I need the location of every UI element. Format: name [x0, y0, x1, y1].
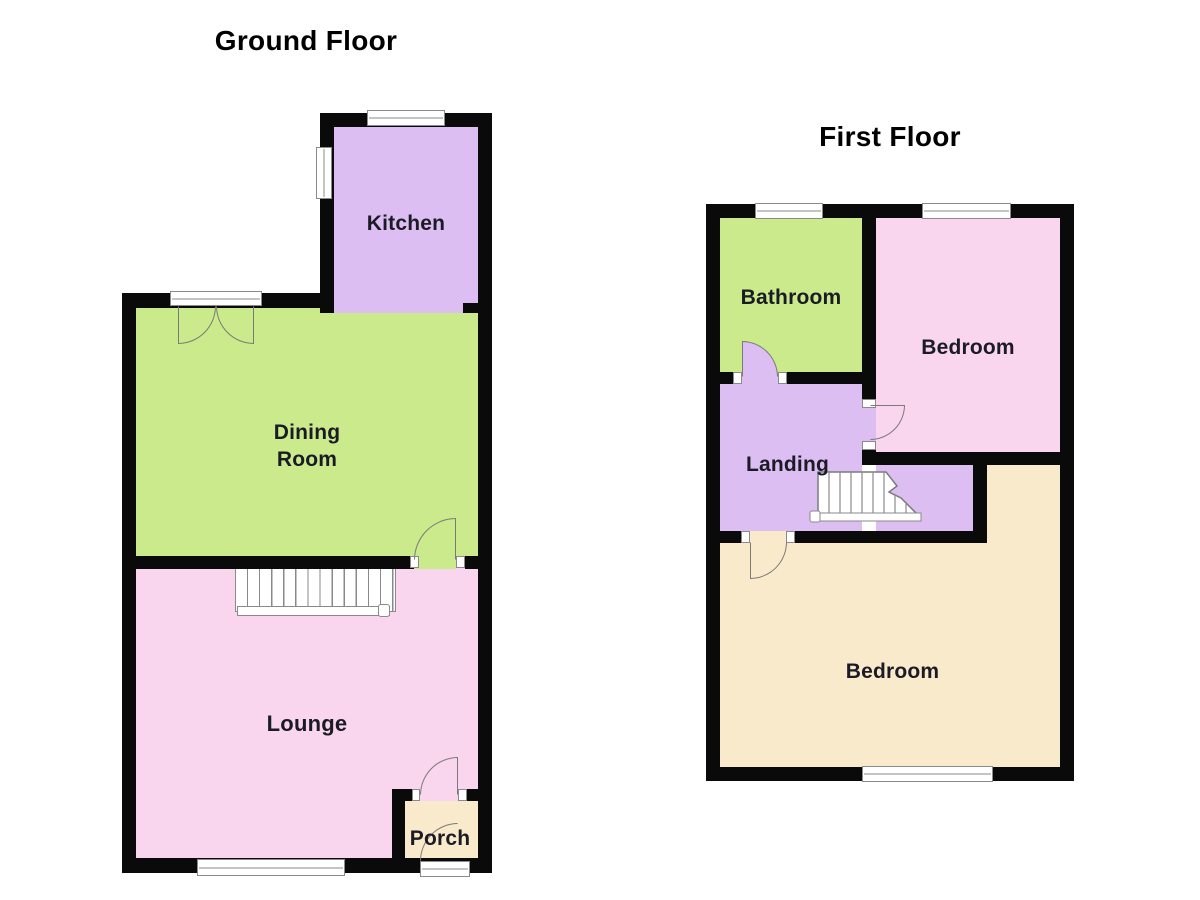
- bedroom-front-window: [922, 203, 1011, 219]
- ground-floor-title: Ground Floor: [156, 23, 456, 59]
- kitchen-label: Kitchen: [334, 210, 478, 238]
- wall-segment: [478, 113, 492, 873]
- wall-segment: [465, 556, 478, 569]
- door-jamb: [741, 531, 750, 543]
- wall-segment: [122, 293, 136, 873]
- kitchen-left-window: [316, 147, 332, 199]
- bedroom-front-label: Bedroom: [876, 334, 1060, 362]
- ground-staircase-newel: [378, 604, 390, 617]
- door-jamb: [786, 531, 795, 543]
- lounge-label: Lounge: [136, 710, 478, 738]
- room-bedroom-back: [720, 543, 1060, 767]
- lounge-bottom-window: [197, 859, 345, 876]
- wall-segment: [862, 452, 1074, 465]
- door-jamb: [862, 441, 876, 450]
- bedroom-back-window: [862, 766, 993, 782]
- wall-segment: [787, 372, 876, 384]
- bathroom-label: Bathroom: [720, 284, 862, 312]
- floorplan-page: Ground Floor: [0, 0, 1200, 900]
- wall-segment: [467, 789, 478, 801]
- ground-staircase-rail: [237, 606, 390, 616]
- wall-segment: [795, 531, 987, 543]
- room-bedroom-back-ext: [987, 465, 1060, 543]
- landing-label: Landing: [710, 451, 865, 479]
- door-jamb: [458, 789, 467, 801]
- door-jamb: [778, 372, 787, 384]
- wall-segment: [706, 372, 733, 384]
- wall-segment: [122, 556, 414, 569]
- wall-segment: [706, 204, 720, 781]
- wall-segment: [463, 303, 478, 313]
- door-jamb: [456, 556, 465, 568]
- dining-room-label: Dining Room: [136, 416, 478, 476]
- door-jamb: [412, 789, 420, 801]
- porch-label: Porch: [396, 826, 484, 852]
- bathroom-window: [755, 203, 823, 219]
- kitchen-top-window: [367, 110, 445, 126]
- bedroom-back-label: Bedroom: [760, 658, 1025, 686]
- door-jamb: [733, 372, 742, 384]
- french-door-frame: [170, 291, 262, 306]
- porch-threshold: [420, 861, 470, 877]
- first-floor-title: First Floor: [740, 119, 1040, 155]
- wall-segment: [320, 113, 334, 313]
- wall-segment: [1060, 204, 1074, 781]
- wall-segment: [706, 531, 742, 543]
